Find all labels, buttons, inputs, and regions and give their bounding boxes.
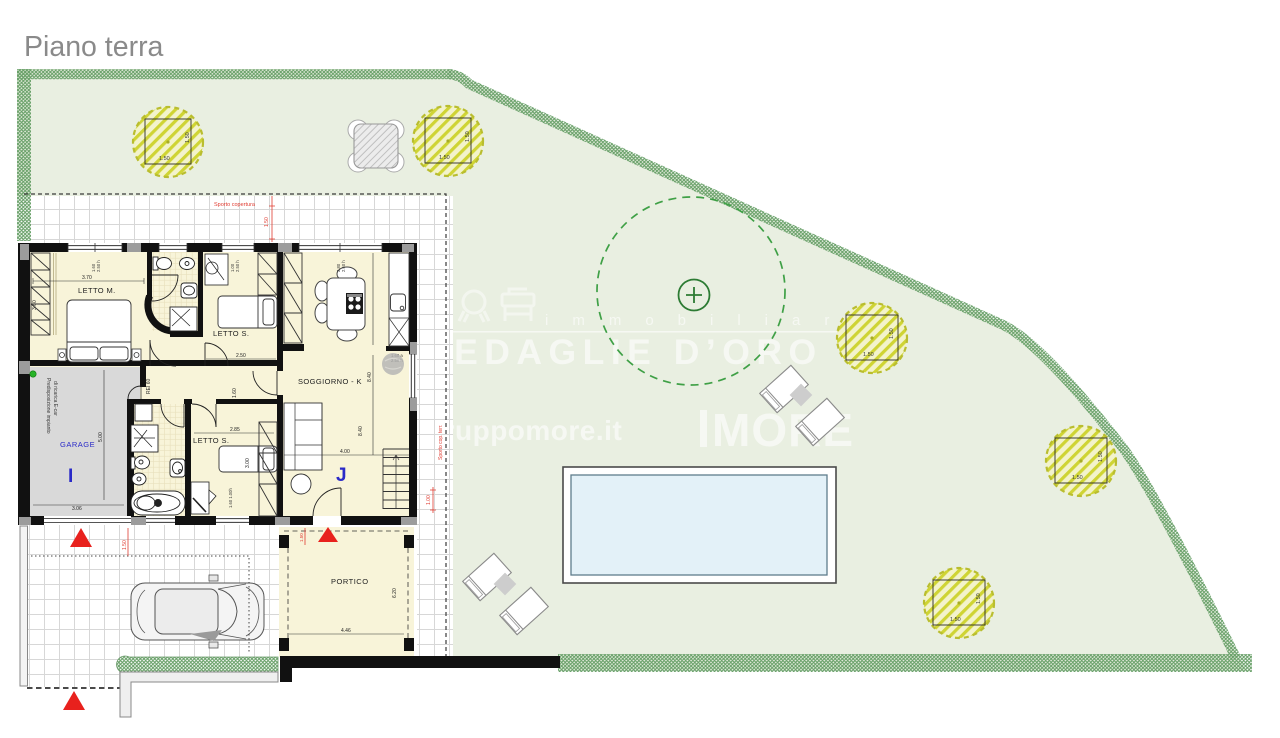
svg-text:1.00: 1.00 [426,495,432,505]
svg-text:8.40: 8.40 [358,426,364,436]
svg-text:1.50: 1.50 [889,328,895,339]
svg-text:SOGGIORNO - K: SOGGIORNO - K [298,377,362,386]
svg-text:2.50 h: 2.50 h [235,260,240,272]
svg-text:LETTO S.: LETTO S. [193,436,229,445]
svg-text:1.60 1.00h: 1.60 1.00h [228,488,233,508]
svg-text:2.50: 2.50 [236,353,246,359]
svg-text:8.40: 8.40 [367,372,373,382]
svg-text:GARAGE: GARAGE [60,440,95,449]
svg-text:1.50: 1.50 [465,131,471,142]
svg-text:J: J [336,465,347,486]
svg-text:di ricarica E-car: di ricarica E-car [52,381,58,416]
svg-text:1.50: 1.50 [159,156,170,162]
svg-text:1.50: 1.50 [1098,451,1104,462]
svg-text:2.85: 2.85 [230,427,240,433]
svg-text:PORTICO: PORTICO [331,577,369,586]
svg-text:1.50: 1.50 [976,593,982,604]
svg-text:2.60 h: 2.60 h [341,260,346,272]
svg-text:4.00: 4.00 [340,449,350,455]
svg-text:Sporto cop. terr.: Sporto cop. terr. [438,424,444,460]
svg-text:2.50 h: 2.50 h [96,260,101,272]
svg-text:1.50: 1.50 [299,533,304,542]
svg-text:3.60: 3.60 [32,300,38,310]
svg-text:1.50: 1.50 [863,352,874,358]
svg-text:4.46: 4.46 [341,628,351,634]
svg-text:gruppomore.it: gruppomore.it [426,415,622,446]
svg-text:5.00: 5.00 [98,432,104,442]
svg-text:LETTO S.: LETTO S. [213,329,249,338]
svg-text:Piano terra: Piano terra [24,31,164,63]
svg-text:I: I [68,466,73,487]
svg-text:1.50: 1.50 [950,617,961,623]
svg-text:1.50: 1.50 [1072,475,1083,481]
svg-text:Sporto copertura: Sporto copertura [214,202,256,208]
svg-text:1.50: 1.50 [185,132,191,143]
svg-text:LETTO M.: LETTO M. [78,286,116,295]
svg-text:immobiliare: immobiliare [545,312,886,329]
svg-text:1.60: 1.60 [232,388,238,398]
svg-text:3.70: 3.70 [82,275,92,281]
svg-text:REI 60: REI 60 [146,378,152,394]
svg-text:3.00: 3.00 [245,458,251,468]
svg-text:1.50: 1.50 [122,540,128,550]
svg-text:1.50: 1.50 [264,217,270,227]
svg-text:1.50: 1.50 [439,155,450,161]
svg-text:Predisposizione impianto: Predisposizione impianto [45,378,51,434]
svg-text:3.06: 3.06 [72,506,82,512]
svg-text:6.20: 6.20 [392,588,398,598]
